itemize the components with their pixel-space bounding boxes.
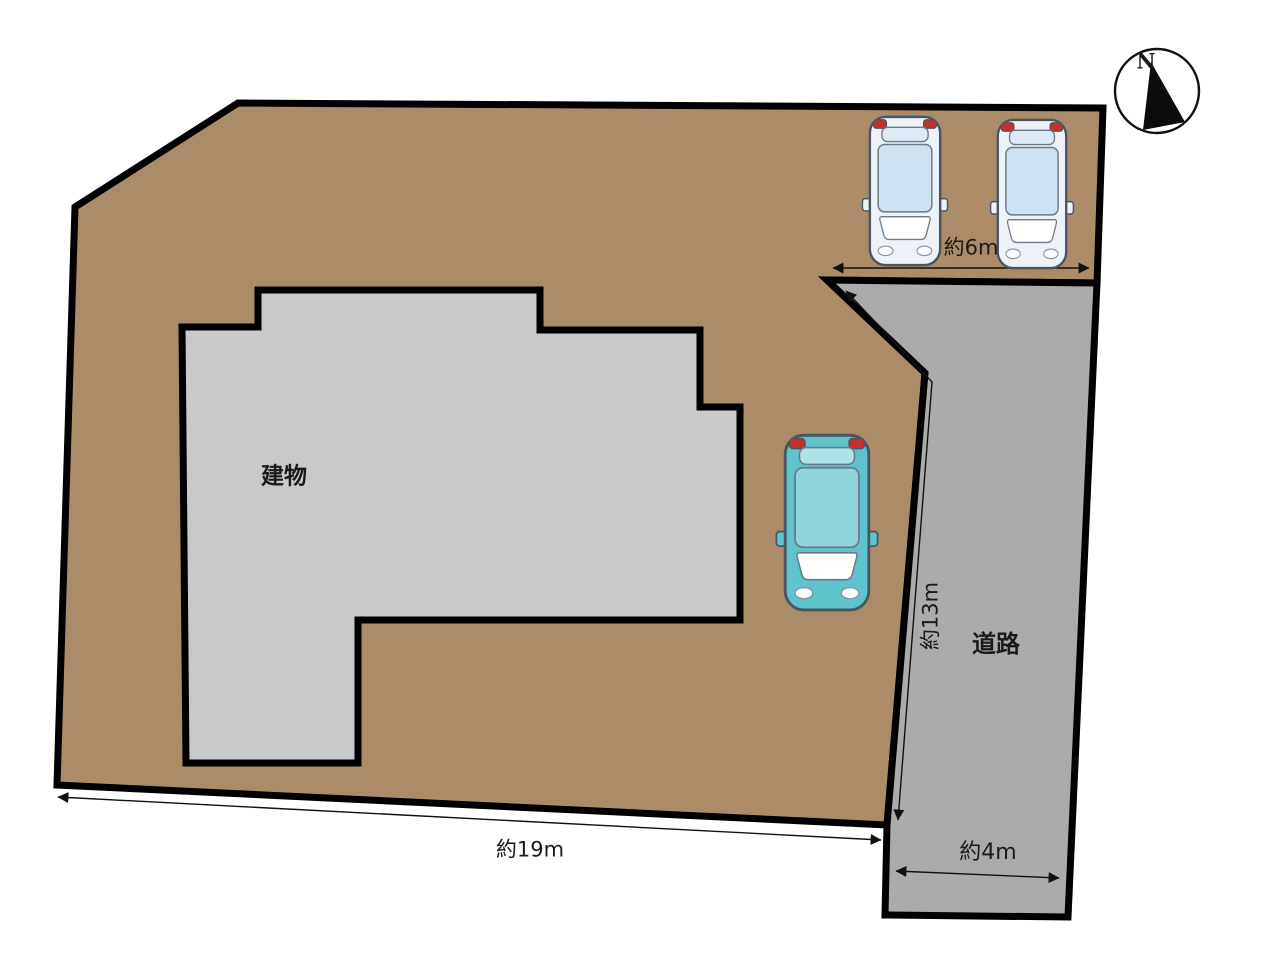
dimension-label-13m: 約13m: [921, 582, 942, 650]
car-icon: [776, 435, 877, 610]
building-label: 建物: [261, 466, 307, 489]
road-label: 道路: [972, 632, 1020, 656]
compass-north-label: N: [1136, 51, 1155, 72]
compass-north-icon: [1115, 49, 1199, 133]
site-plan-canvas: [0, 0, 1262, 960]
dimension-label-6m: 約6m: [944, 238, 999, 259]
dimension-label-4m: 約4m: [959, 842, 1016, 864]
car-icon: [862, 117, 947, 265]
car-icon: [991, 120, 1074, 268]
dimension-label-19m: 約19m: [496, 840, 564, 861]
